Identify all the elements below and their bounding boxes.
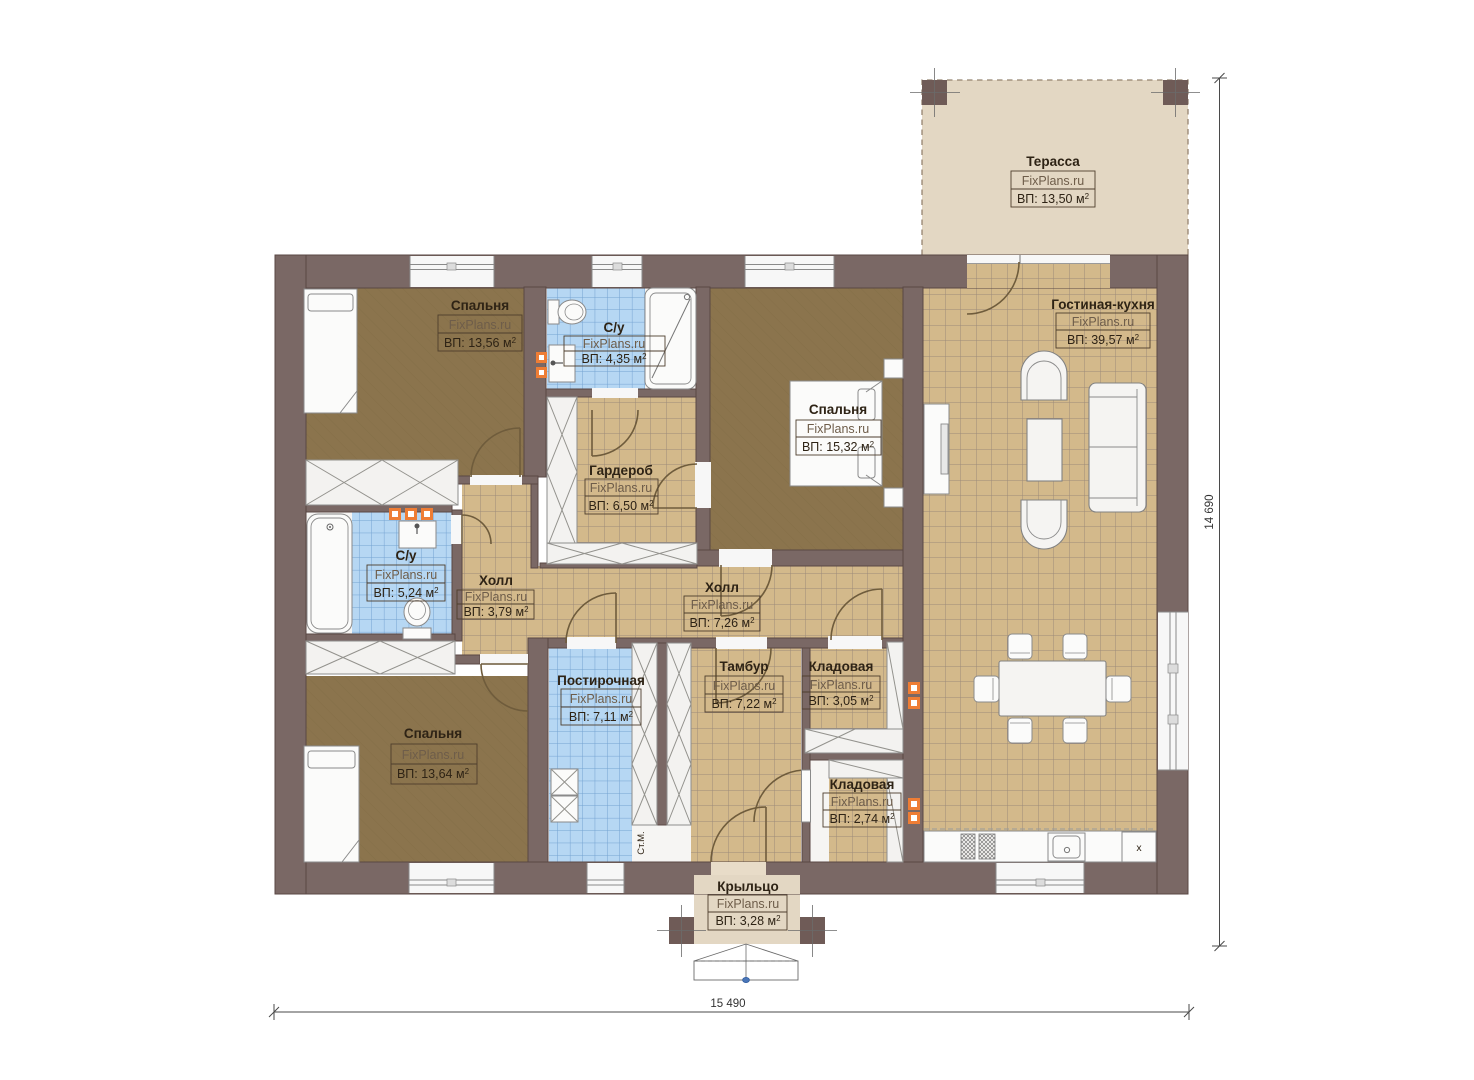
svg-text:ВП: 4,35 м2: ВП: 4,35 м2 <box>581 352 647 366</box>
svg-text:Крыльцо: Крыльцо <box>717 879 778 894</box>
svg-text:FixPlans.ru: FixPlans.ru <box>402 748 465 762</box>
svg-text:ВП: 6,50 м2: ВП: 6,50 м2 <box>588 499 654 513</box>
svg-text:FixPlans.ru: FixPlans.ru <box>375 568 438 582</box>
svg-text:ВП: 3,28 м2: ВП: 3,28 м2 <box>715 914 781 928</box>
svg-text:ВП: 13,64 м2: ВП: 13,64 м2 <box>397 767 470 781</box>
svg-text:ВП: 7,22 м2: ВП: 7,22 м2 <box>711 697 777 711</box>
svg-text:FixPlans.ru: FixPlans.ru <box>691 598 754 612</box>
svg-text:Тамбур: Тамбур <box>720 659 769 674</box>
svg-text:x: x <box>1136 842 1142 854</box>
svg-text:FixPlans.ru: FixPlans.ru <box>717 897 780 911</box>
svg-text:FixPlans.ru: FixPlans.ru <box>807 422 870 436</box>
svg-text:С/у: С/у <box>395 548 417 563</box>
svg-text:FixPlans.ru: FixPlans.ru <box>570 692 633 706</box>
svg-text:Кладовая: Кладовая <box>830 777 895 792</box>
svg-text:ВП: 3,05 м2: ВП: 3,05 м2 <box>808 694 874 708</box>
svg-text:FixPlans.ru: FixPlans.ru <box>465 590 528 604</box>
svg-text:ВП: 7,11 м2: ВП: 7,11 м2 <box>569 710 634 724</box>
svg-text:FixPlans.ru: FixPlans.ru <box>1072 315 1135 329</box>
svg-text:Постирочная: Постирочная <box>557 673 645 688</box>
svg-text:FixPlans.ru: FixPlans.ru <box>810 678 873 692</box>
svg-text:ВП: 3,79 м2: ВП: 3,79 м2 <box>463 605 529 619</box>
svg-text:С/у: С/у <box>603 320 625 335</box>
svg-text:Холл: Холл <box>705 580 739 595</box>
svg-text:FixPlans.ru: FixPlans.ru <box>449 318 512 332</box>
svg-text:FixPlans.ru: FixPlans.ru <box>1022 174 1085 188</box>
svg-text:ВП: 15,32 м2: ВП: 15,32 м2 <box>802 440 875 454</box>
svg-text:Спальня: Спальня <box>404 726 462 741</box>
svg-text:ВП: 13,56 м2: ВП: 13,56 м2 <box>444 336 517 350</box>
svg-text:Гостиная-кухня: Гостиная-кухня <box>1051 297 1154 312</box>
svg-text:Холл: Холл <box>479 573 513 588</box>
svg-text:FixPlans.ru: FixPlans.ru <box>713 679 776 693</box>
svg-text:ВП: 39,57 м2: ВП: 39,57 м2 <box>1067 333 1140 347</box>
svg-text:ВП: 5,24 м2: ВП: 5,24 м2 <box>373 586 439 600</box>
svg-text:FixPlans.ru: FixPlans.ru <box>831 795 894 809</box>
svg-text:ВП: 7,26 м2: ВП: 7,26 м2 <box>689 616 755 630</box>
svg-text:ВП: 13,50 м2: ВП: 13,50 м2 <box>1017 192 1090 206</box>
svg-text:Спальня: Спальня <box>809 402 867 417</box>
svg-text:FixPlans.ru: FixPlans.ru <box>590 481 653 495</box>
svg-text:FixPlans.ru: FixPlans.ru <box>583 337 646 351</box>
svg-text:15 490: 15 490 <box>710 998 745 1010</box>
svg-text:Терасса: Терасса <box>1026 154 1080 169</box>
svg-text:Кладовая: Кладовая <box>809 659 874 674</box>
svg-text:Спальня: Спальня <box>451 298 509 313</box>
svg-text:14 690: 14 690 <box>1204 494 1216 529</box>
svg-text:Ст.М.: Ст.М. <box>636 831 647 854</box>
svg-text:ВП: 2,74 м2: ВП: 2,74 м2 <box>829 812 895 826</box>
svg-text:Гардероб: Гардероб <box>589 463 653 478</box>
